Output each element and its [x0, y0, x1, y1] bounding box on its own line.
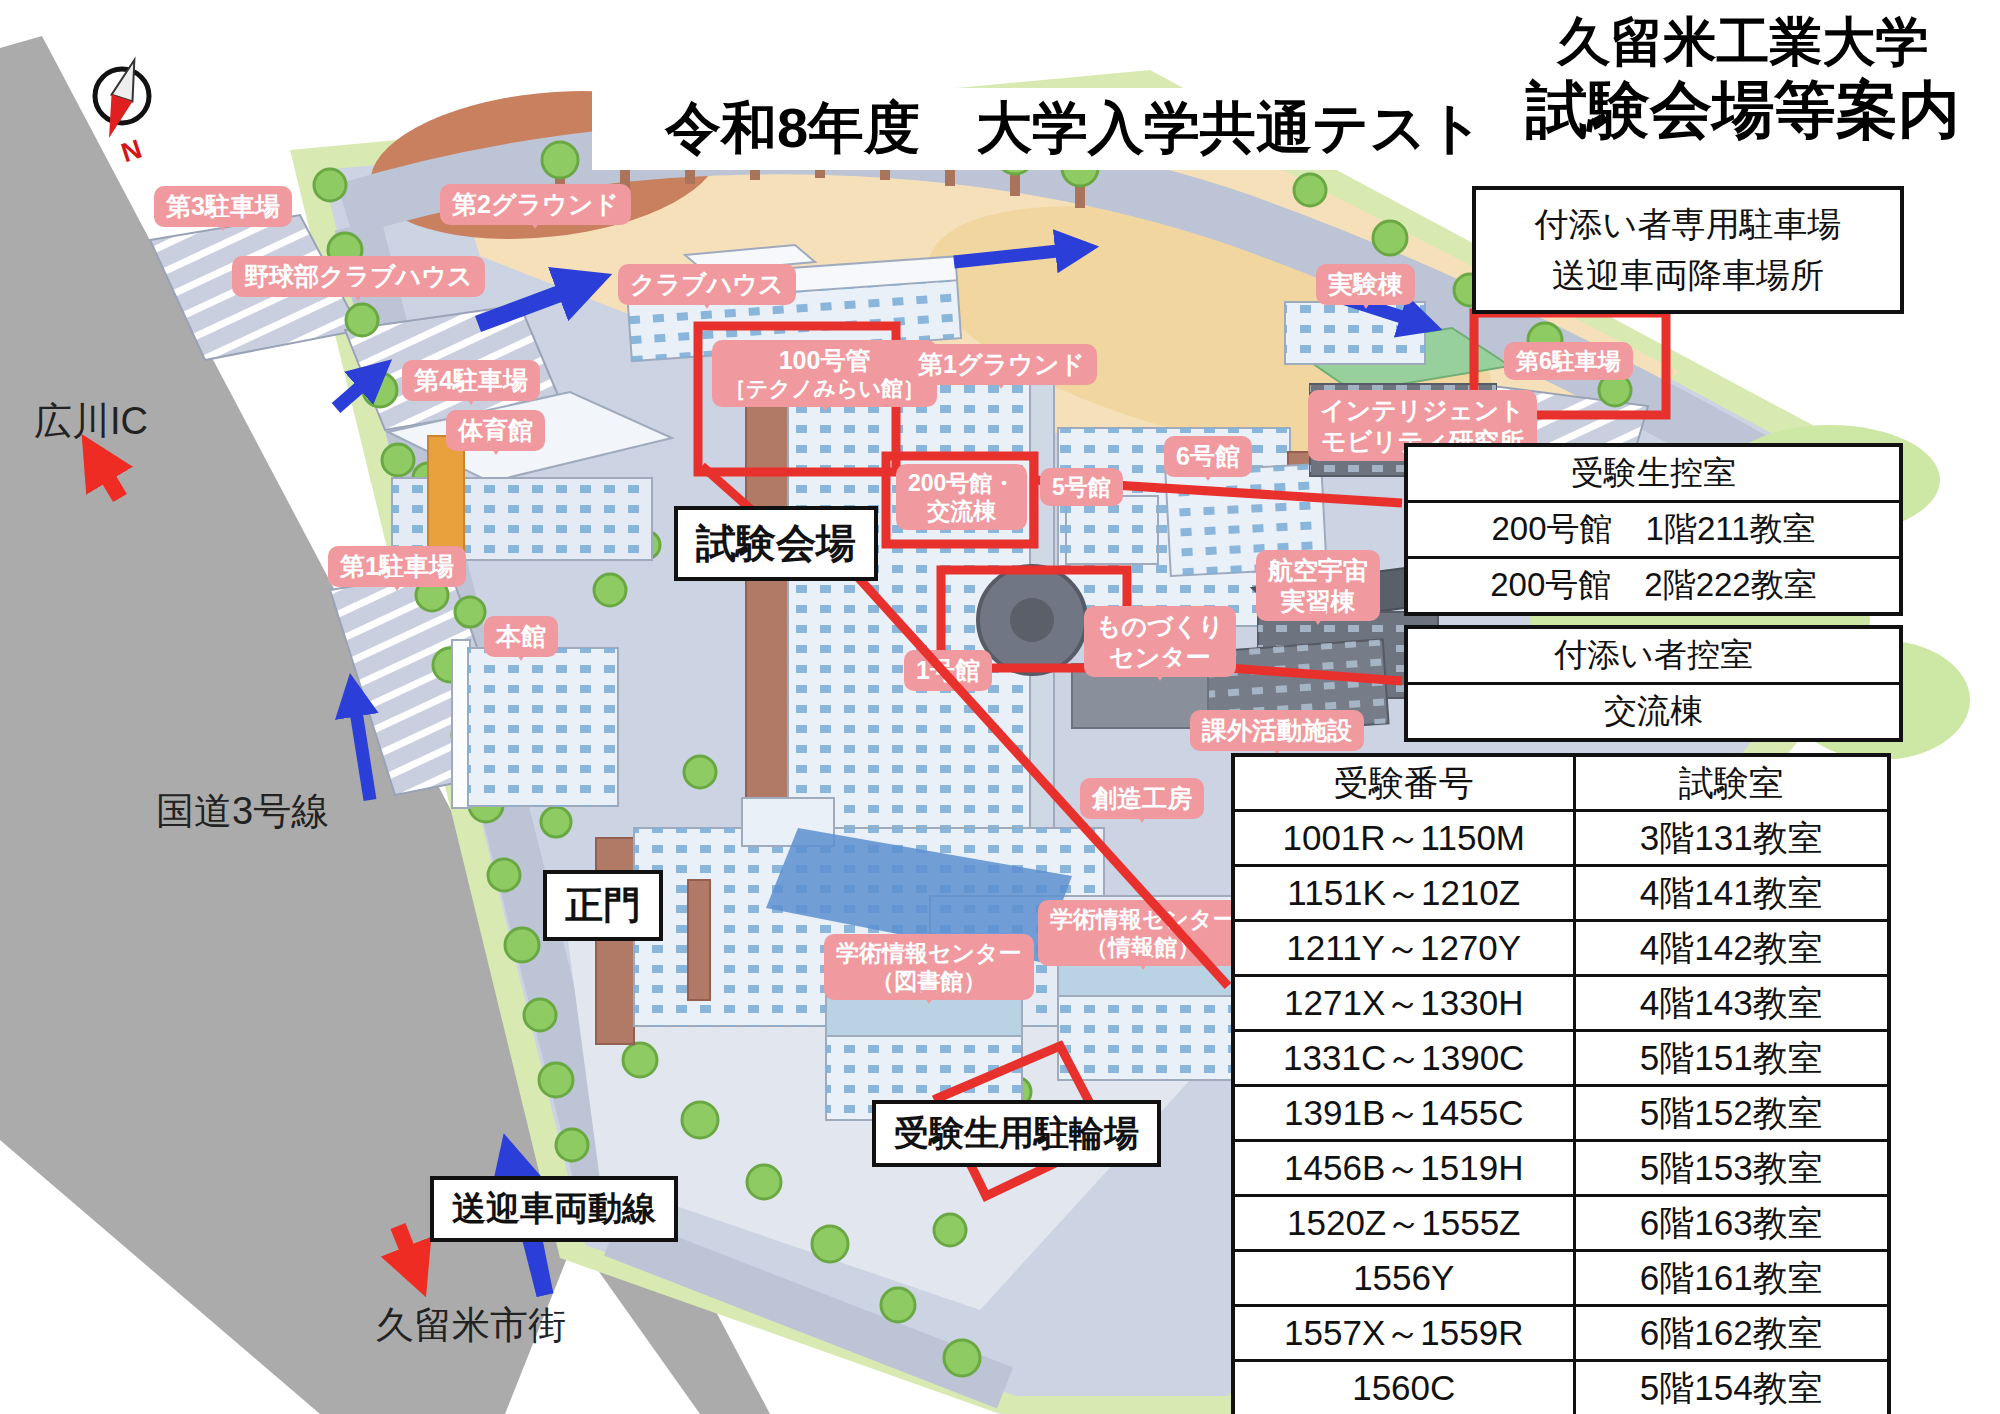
compass-icon	[95, 57, 149, 142]
exam-room-cell: 6階163教室	[1574, 1196, 1889, 1251]
map-label-ground-2: 第2グラウンド	[440, 184, 631, 225]
table-row: 1391B～1455C5階152教室	[1233, 1086, 1889, 1141]
examinee-waiting-room-2: 200号館 2階222教室	[1408, 556, 1899, 612]
exam-number-cell: 1151K～1210Z	[1233, 866, 1574, 921]
map-label-main-bldg: 本館	[484, 616, 558, 657]
shuttle-route-callout: 送迎車両動線	[430, 1176, 678, 1242]
school-name: 久留米工業大学	[1492, 10, 1994, 74]
map-label-parking-4: 第4駐車場	[402, 360, 540, 401]
road-label-route-3: 国道3号線	[156, 786, 329, 837]
companion-parking-box: 付添い者専用駐車場 送迎車両降車場所	[1472, 186, 1904, 314]
exam-room-cell: 5階152教室	[1574, 1086, 1889, 1141]
map-label-library: 学術情報センター （図書館）	[824, 934, 1034, 1000]
table-header-row: 受験番号 試験室	[1233, 755, 1889, 811]
exam-room-cell: 6階161教室	[1574, 1251, 1889, 1306]
map-label-bldg-1: 1号館	[904, 650, 992, 691]
exam-room-table: 受験番号 試験室 1001R～1150M3階131教室 1151K～1210Z4…	[1231, 753, 1891, 1414]
exam-room-cell: 5階154教室	[1574, 1361, 1889, 1414]
table-row: 1151K～1210Z4階141教室	[1233, 866, 1889, 921]
examinee-waiting-room-table: 受験生控室 200号館 1階211教室 200号館 2階222教室	[1404, 443, 1903, 616]
examinee-waiting-header: 受験生控室	[1408, 447, 1899, 500]
exam-room-cell: 4階143教室	[1574, 976, 1889, 1031]
map-label-parking-1: 第1駐車場	[328, 546, 466, 587]
map-label-gymnasium: 体育館	[446, 410, 545, 451]
main-gate-callout: 正門	[543, 870, 663, 941]
companion-waiting-room: 交流棟	[1408, 682, 1899, 738]
map-label-bldg-200-koryu: 200号館・ 交流棟	[896, 464, 1027, 530]
map-label-ground-1: 第1グラウンド	[906, 344, 1097, 385]
companion-parking-line1: 付添い者専用駐車場	[1476, 199, 1900, 250]
map-label-parking-6: 第6駐車場	[1504, 342, 1633, 380]
map-label-bldg-100-technomirai: 100号管 ［テクノみらい館］	[712, 340, 937, 407]
map-label-info-center: 学術情報センター （情報館）	[1038, 900, 1248, 966]
table-row: 1211Y～1270Y4階142教室	[1233, 921, 1889, 976]
exam-number-cell: 1391B～1455C	[1233, 1086, 1574, 1141]
bicycle-parking-callout: 受験生用駐輪場	[872, 1100, 1161, 1167]
companion-parking-line2: 送迎車両降車場所	[1476, 250, 1900, 301]
table-row: 1556Y6階161教室	[1233, 1251, 1889, 1306]
exam-number-cell: 1556Y	[1233, 1251, 1574, 1306]
exam-number-cell: 1001R～1150M	[1233, 811, 1574, 866]
exam-room-cell: 4階142教室	[1574, 921, 1889, 976]
table-row: 1331C～1390C5階151教室	[1233, 1031, 1889, 1086]
map-label-extracurricular-facility: 課外活動施設	[1190, 710, 1364, 751]
exam-number-cell: 1211Y～1270Y	[1233, 921, 1574, 976]
exam-room-cell: 3階131教室	[1574, 811, 1889, 866]
map-label-clubhouse: クラブハウス	[618, 264, 796, 305]
map-label-aerospace-workshop: 航空宇宙 実習棟	[1256, 550, 1380, 621]
map-label-sozo-kobo: 創造工房	[1080, 778, 1204, 819]
page-subtitle: 試験会場等案内	[1492, 74, 1994, 145]
map-label-bldg-5: 5号館	[1040, 468, 1123, 506]
exam-room-cell: 6階162教室	[1574, 1306, 1889, 1361]
table-row: 1001R～1150M3階131教室	[1233, 811, 1889, 866]
exam-room-cell: 5階151教室	[1574, 1031, 1889, 1086]
map-label-baseball-clubhouse: 野球部クラブハウス	[232, 256, 485, 297]
map-label-monozukuri-center: ものづくり センター	[1084, 606, 1236, 677]
main-building	[452, 640, 618, 808]
examinee-waiting-room-1: 200号館 1階211教室	[1408, 500, 1899, 556]
page-title: 令和8年度 大学入学共通テスト	[592, 88, 1557, 170]
table-row: 1557X～1559R6階162教室	[1233, 1306, 1889, 1361]
exam-room-header: 試験室	[1574, 755, 1889, 811]
exam-number-header: 受験番号	[1233, 755, 1574, 811]
exam-number-cell: 1331C～1390C	[1233, 1031, 1574, 1086]
school-title-block: 久留米工業大学 試験会場等案内	[1492, 10, 1994, 145]
table-row: 1520Z～1555Z6階163教室	[1233, 1196, 1889, 1251]
map-label-experiment-bldg: 実験棟	[1316, 264, 1415, 305]
exam-number-cell: 1456B～1519H	[1233, 1141, 1574, 1196]
road-label-kurume-city: 久留米市街	[376, 1300, 566, 1351]
map-label-parking-3: 第3駐車場	[154, 186, 292, 227]
companion-waiting-room-table: 付添い者控室 交流棟	[1404, 625, 1903, 742]
map-label-bldg-6: 6号館	[1164, 436, 1252, 477]
gate-pillar	[688, 880, 710, 1000]
exam-venue-callout: 試験会場	[674, 506, 878, 581]
exam-number-cell: 1520Z～1555Z	[1233, 1196, 1574, 1251]
table-row: 1271X～1330H4階143教室	[1233, 976, 1889, 1031]
table-row: 1560C5階154教室	[1233, 1361, 1889, 1414]
exam-room-cell: 4階141教室	[1574, 866, 1889, 921]
campus-map-page: 第3駐車場 野球部クラブハウス 第2グラウンド 第4駐車場 クラブハウス 体育館…	[0, 0, 2000, 1414]
exam-number-cell: 1557X～1559R	[1233, 1306, 1574, 1361]
road-label-hirokawa-ic: 広川IC	[34, 396, 148, 447]
table-row: 1456B～1519H5階153教室	[1233, 1141, 1889, 1196]
companion-waiting-header: 付添い者控室	[1408, 629, 1899, 682]
exam-number-cell: 1560C	[1233, 1361, 1574, 1414]
exam-number-cell: 1271X～1330H	[1233, 976, 1574, 1031]
exam-room-cell: 5階153教室	[1574, 1141, 1889, 1196]
